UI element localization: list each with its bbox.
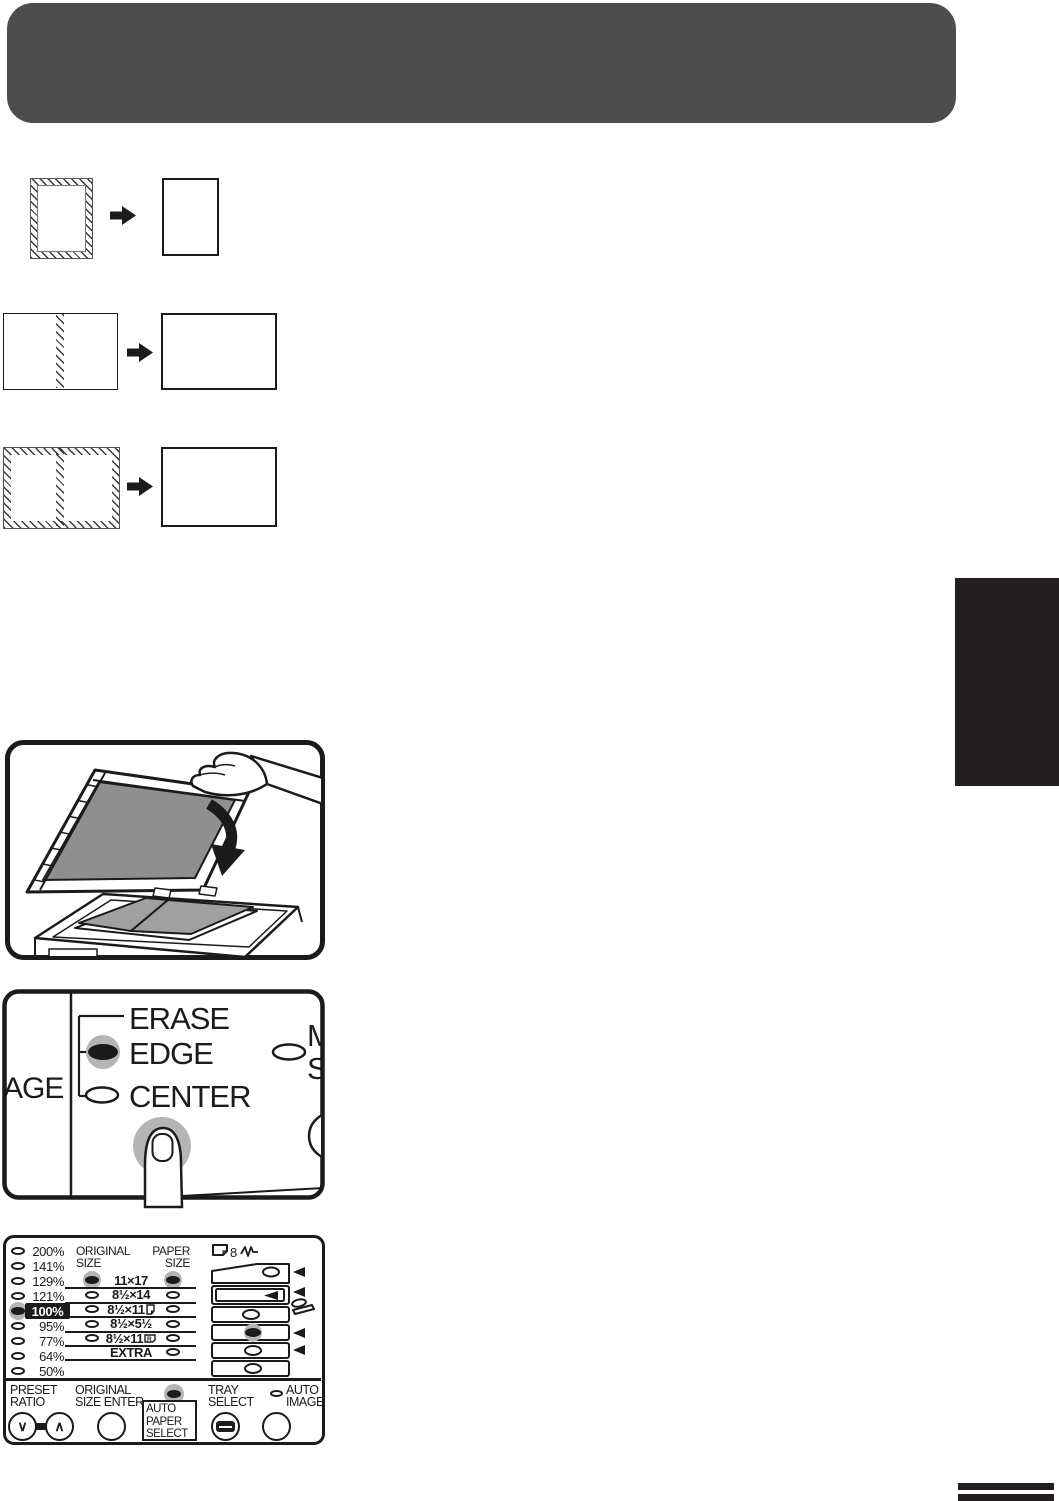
ratio-up-button: ∧: [45, 1412, 74, 1441]
ratio-label: 200%: [24, 1244, 64, 1259]
center-led-off: [86, 1088, 118, 1103]
page-mark-bar: [958, 1494, 1054, 1501]
ratio-led-100-on: [11, 1307, 25, 1315]
ratio-label: 121%: [24, 1289, 64, 1304]
erase-panel-closeup: AGE ERASE EDGE CENTER M S: [2, 989, 325, 1209]
auto-paper-select-box: AUTO PAPER SELECT: [142, 1400, 197, 1441]
tray-select-label2: SELECT: [208, 1396, 254, 1408]
edge-label: EDGE: [129, 1036, 213, 1071]
diagram3-copy-result: [161, 447, 277, 527]
tray-status-diagram: 8: [201, 1241, 315, 1378]
page-icon: [213, 1245, 227, 1255]
ratio-label: 141%: [24, 1259, 64, 1274]
preset-ratio-label2: RATIO: [10, 1396, 45, 1408]
cover-hinge: [153, 888, 171, 898]
ratio-led-141: [11, 1262, 25, 1270]
original-11x17-led-on: [85, 1276, 99, 1284]
auto-image-button: [262, 1412, 291, 1441]
ratio-led-50: [11, 1367, 25, 1375]
panel-divider: [6, 1378, 321, 1381]
pointer-triangle-icon: [293, 1267, 305, 1277]
original-8.5x11R-led: [85, 1334, 99, 1342]
paper-8.5x11R-led: [166, 1334, 180, 1342]
ratio-label: 64%: [24, 1349, 64, 1364]
pointer-triangle-icon: [293, 1328, 305, 1338]
pointer-triangle-icon: [293, 1287, 305, 1297]
ratio-label: 77%: [24, 1334, 64, 1349]
paper-11x17-led-on: [166, 1276, 180, 1284]
edge-led-on: [88, 1044, 118, 1060]
tray-select-button: [211, 1412, 240, 1441]
svg-text:R: R: [147, 1336, 152, 1343]
ratio-panel-closeup: 200% 141% 129% 121% 100% 95% 77% 64% 50%…: [3, 1235, 325, 1445]
auto-paper-select-label3: SELECT: [146, 1428, 195, 1441]
auto-paper-select-label: AUTO: [146, 1403, 195, 1416]
manual-page: AGE ERASE EDGE CENTER M S 200% 141%: [0, 0, 1059, 1501]
original-8.5x14-led: [85, 1291, 99, 1299]
ratio-label: 95%: [24, 1319, 64, 1334]
original-size-enter-label2: SIZE ENTER: [75, 1396, 144, 1408]
page-mark-bar: [958, 1483, 1054, 1490]
size-label: EXTRA: [110, 1345, 152, 1360]
arrow-right-icon: [110, 206, 137, 225]
original-size-enter-button: [97, 1412, 126, 1441]
original-size-header2: SIZE: [76, 1257, 101, 1269]
size-label: 8½×14: [112, 1287, 150, 1302]
paper-8.5x11-led: [166, 1305, 180, 1313]
partial-image-label: AGE: [3, 1072, 63, 1105]
diagram3-center-strip: [56, 448, 64, 526]
ratio-led-95: [11, 1322, 25, 1330]
chevron-down-icon: ∨: [17, 1418, 27, 1435]
arrow-right-icon: [127, 343, 154, 362]
eight-label: 8: [230, 1245, 237, 1260]
size-label: 8½×11: [107, 1302, 144, 1317]
paper-extra-led: [166, 1348, 180, 1356]
auto-image-label2: IMAGE: [286, 1396, 324, 1408]
ratio-led-77: [11, 1337, 25, 1345]
copier-illustration: [5, 740, 325, 960]
tray-led-on: [245, 1328, 261, 1337]
ratio-led-129: [11, 1277, 25, 1285]
paper-size-header2: SIZE: [144, 1257, 190, 1269]
ratio-led-64: [11, 1352, 25, 1360]
section-tab: [955, 578, 1059, 786]
tray-icon: [216, 1421, 235, 1432]
paper-8.5x14-led: [166, 1291, 180, 1299]
margin-shift-led-off: [273, 1045, 305, 1060]
arrow-right-icon: [127, 477, 154, 496]
auto-paper-led-on: [167, 1390, 181, 1398]
erase-label: ERASE: [129, 1001, 229, 1036]
title-bar: [7, 3, 956, 123]
ratio-down-button: ∨: [8, 1412, 37, 1441]
center-label: CENTER: [129, 1079, 250, 1114]
fingernail: [153, 1134, 173, 1161]
ratio-label-highlighted: 100%: [25, 1303, 70, 1319]
ratio-led-121: [11, 1292, 25, 1300]
portrait-page-icon: [146, 1304, 155, 1315]
diagram1-original-hatched: [30, 178, 93, 259]
original-8.5x5.5-led: [85, 1320, 99, 1328]
pointer-triangle-icon: [293, 1345, 305, 1355]
row-separator: [65, 1359, 196, 1361]
diagram2-original: [3, 313, 118, 390]
size-label: 11×17: [114, 1273, 148, 1288]
diagram1-copy-result: [162, 178, 219, 256]
diagram2-copy-result: [161, 313, 277, 390]
paper-type-wave-icon: [241, 1247, 258, 1256]
size-label: 8½×5½: [110, 1316, 152, 1331]
auto-paper-select-label2: PAPER: [146, 1416, 195, 1429]
original-8.5x11-led: [85, 1305, 99, 1313]
ratio-label: 129%: [24, 1274, 64, 1289]
diagram3-original-hatched: [3, 447, 120, 529]
chevron-up-icon: ∧: [54, 1418, 64, 1435]
cover-hinge: [199, 886, 217, 896]
landscape-page-r-icon: R: [144, 1334, 156, 1343]
auto-image-led-off: [270, 1390, 283, 1397]
diagram1-original-inner: [37, 185, 86, 252]
ratio-label: 50%: [24, 1364, 64, 1379]
ratio-led-200: [11, 1247, 25, 1255]
paper-8.5x5.5-led: [166, 1320, 180, 1328]
diagram2-center-strip: [56, 314, 64, 388]
